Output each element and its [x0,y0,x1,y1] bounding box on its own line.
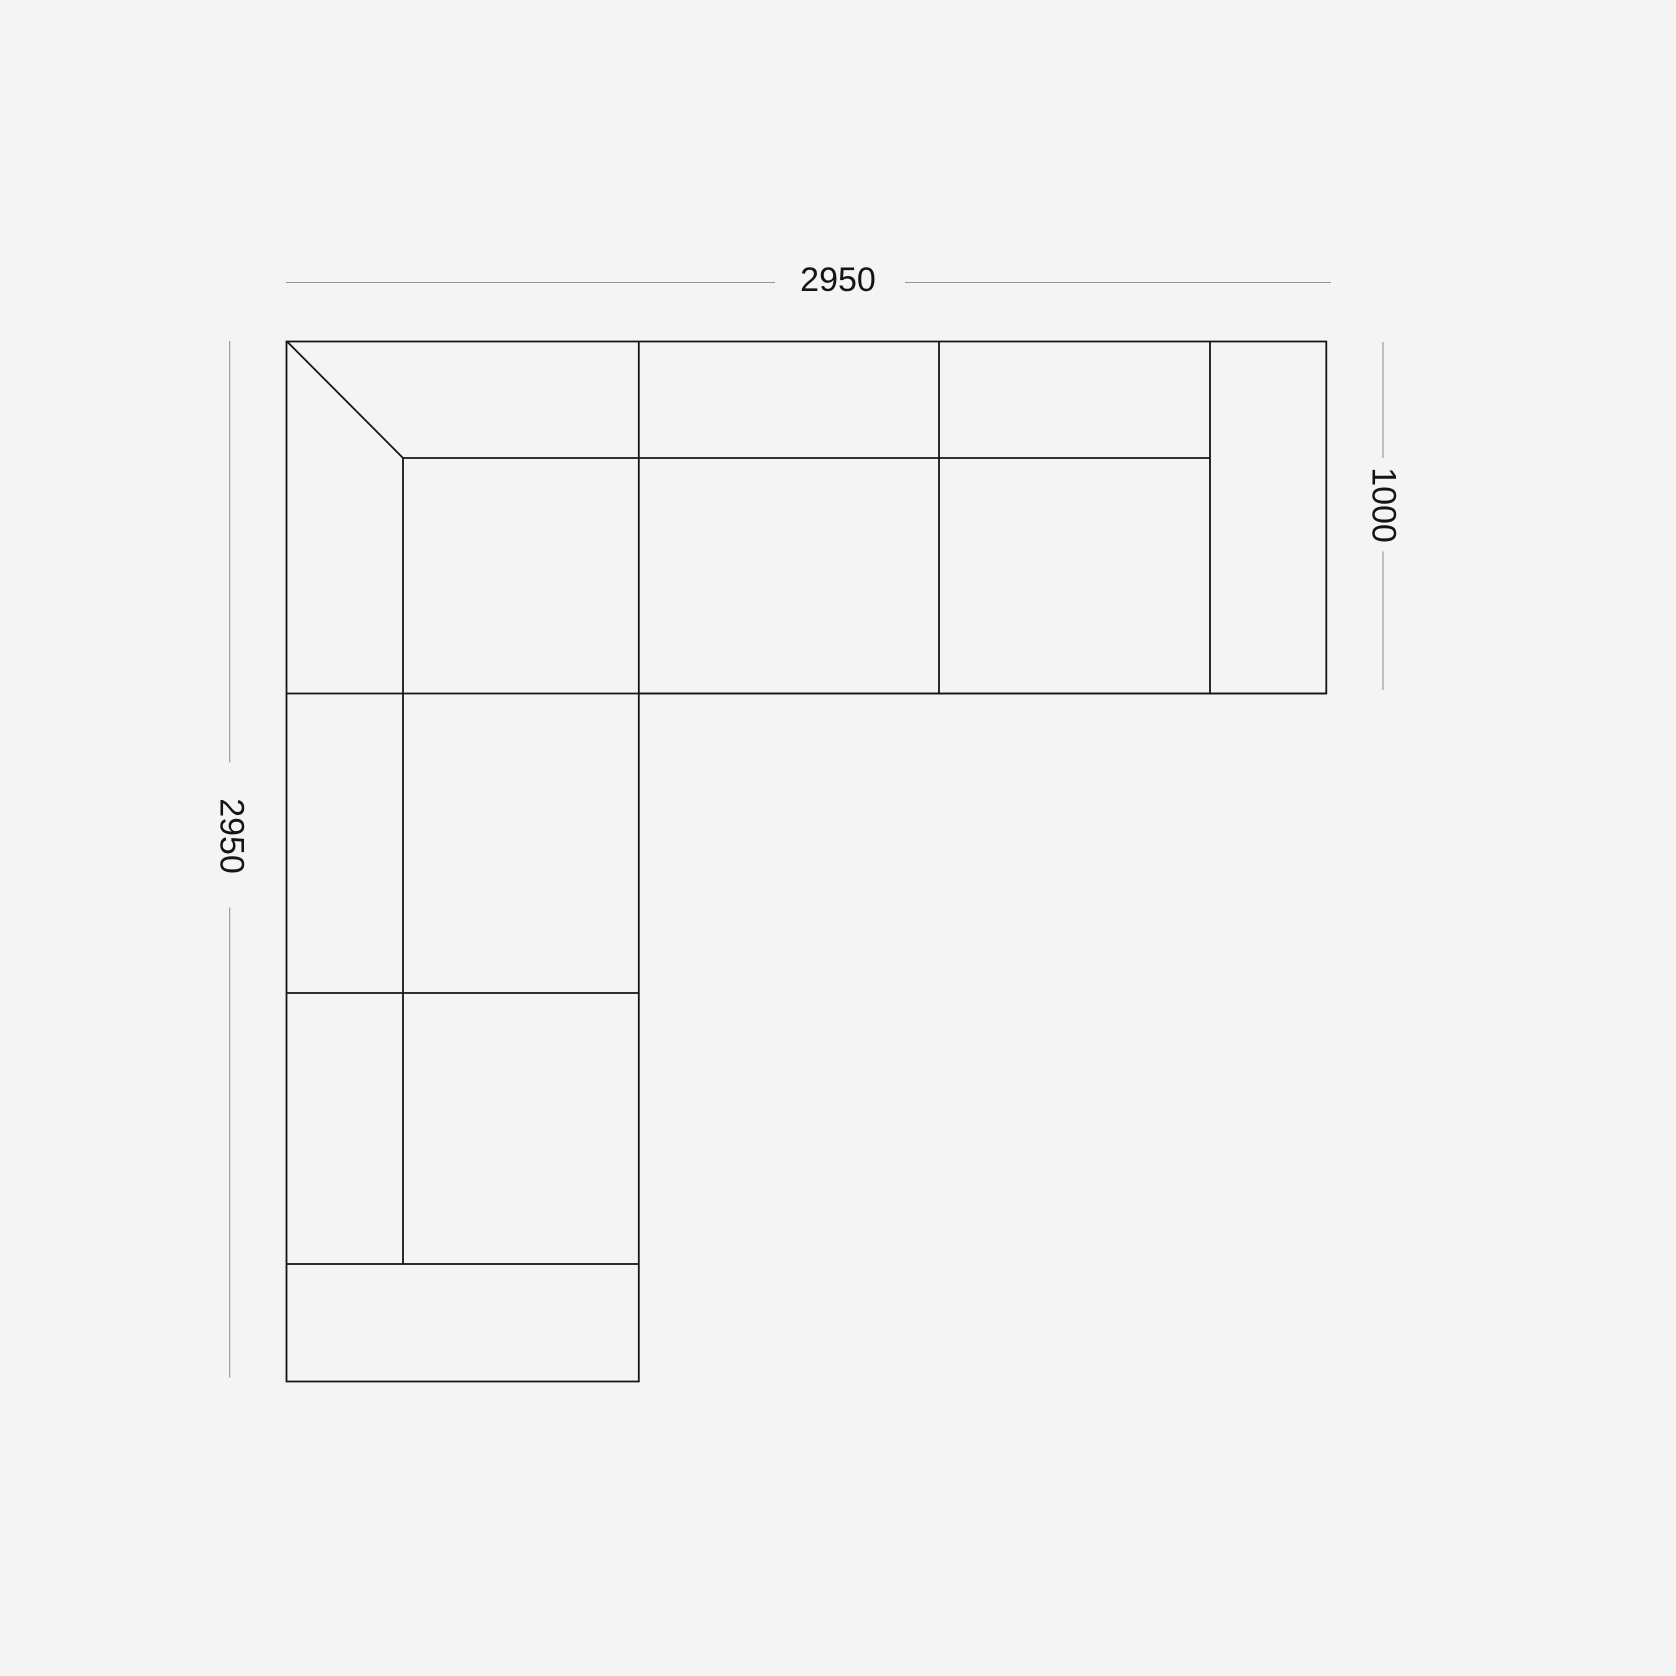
svg-text:1000: 1000 [1365,467,1403,543]
svg-text:2950: 2950 [800,261,876,299]
svg-text:2950: 2950 [213,798,251,874]
